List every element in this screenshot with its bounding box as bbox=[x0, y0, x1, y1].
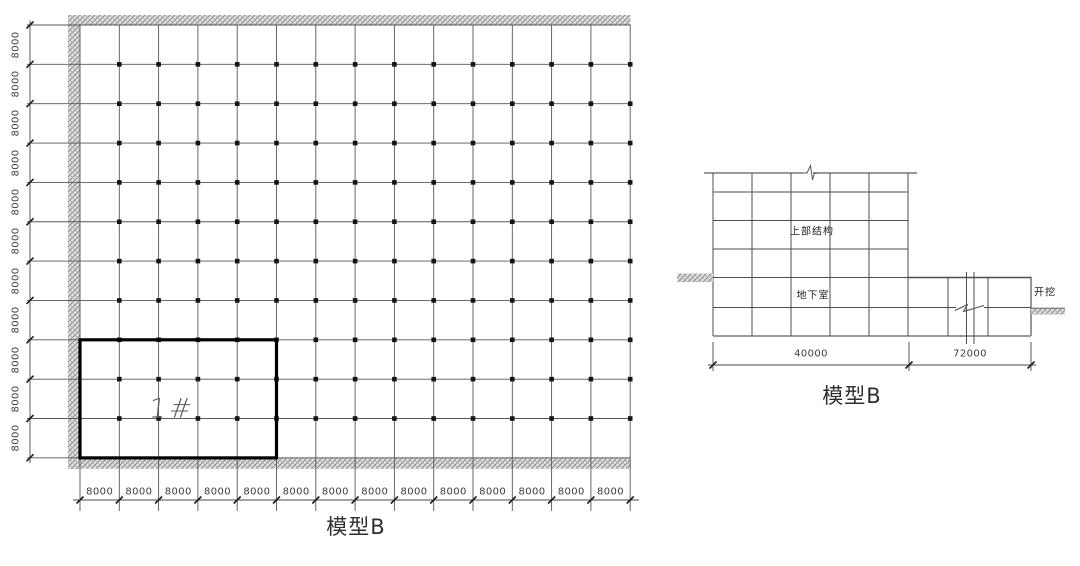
left-dim-label: 8000 bbox=[11, 385, 22, 412]
left-dim-label: 8000 bbox=[11, 425, 22, 452]
bottom-dim-label: 8000 bbox=[558, 487, 585, 498]
plan-caption: 模型B bbox=[326, 511, 385, 541]
basement-wing-grid bbox=[713, 278, 1031, 337]
bottom-dim-label: 8000 bbox=[125, 487, 152, 498]
left-dim-label: 8000 bbox=[11, 346, 22, 373]
left-dim-label: 8000 bbox=[11, 149, 22, 176]
bottom-dim-label: 8000 bbox=[479, 487, 506, 498]
left-dim-label: 8000 bbox=[11, 228, 22, 255]
left-dim-label: 8000 bbox=[11, 267, 22, 294]
upper-structure-label: 上部结构 bbox=[790, 223, 834, 238]
bottom-dim-label: 8000 bbox=[204, 487, 231, 498]
excavation-label: 开挖 bbox=[1034, 284, 1056, 299]
bottom-dim-label: 8000 bbox=[361, 487, 388, 498]
bottom-dim-label: 8000 bbox=[165, 487, 192, 498]
tower-grid bbox=[677, 173, 1031, 336]
floor-plan-drawing bbox=[27, 15, 640, 511]
section-break-icon bbox=[955, 272, 984, 344]
top-break-icon bbox=[803, 166, 817, 181]
bottom-dim-label: 8000 bbox=[283, 487, 310, 498]
wall-hatch-top bbox=[68, 15, 631, 25]
column-dots bbox=[117, 62, 633, 421]
left-dim-label: 8000 bbox=[11, 189, 22, 216]
section-dim-right-label: 72000 bbox=[953, 349, 987, 360]
bottom-dim-label: 8000 bbox=[243, 487, 270, 498]
bottom-dim-label: 8000 bbox=[597, 487, 624, 498]
grid-lines bbox=[27, 25, 630, 511]
left-dim-label: 8000 bbox=[11, 110, 22, 137]
bottom-dim-label: 8000 bbox=[440, 487, 467, 498]
section-dim-left-label: 40000 bbox=[794, 349, 828, 360]
bottom-dim-label: 8000 bbox=[322, 487, 349, 498]
structural-drawing bbox=[0, 0, 1080, 566]
wall-hatch-bottom bbox=[68, 458, 631, 469]
bottom-dim-label: 8000 bbox=[518, 487, 545, 498]
ground-hatch-left bbox=[677, 274, 713, 283]
section-drawing bbox=[677, 166, 1065, 372]
left-dim-label: 8000 bbox=[11, 70, 22, 97]
left-dim-label: 8000 bbox=[11, 31, 22, 58]
bottom-dim-label: 8000 bbox=[400, 487, 427, 498]
cad-canvas: 8000800080008000800080008000800080008000… bbox=[0, 0, 1080, 566]
bottom-dim-label: 8000 bbox=[86, 487, 113, 498]
section-caption: 模型B bbox=[822, 380, 881, 410]
basement-label: 地下室 bbox=[797, 287, 830, 302]
building-block-label: 1# bbox=[147, 394, 196, 425]
left-dim-label: 8000 bbox=[11, 307, 22, 334]
section-outer-lines bbox=[704, 173, 1031, 336]
